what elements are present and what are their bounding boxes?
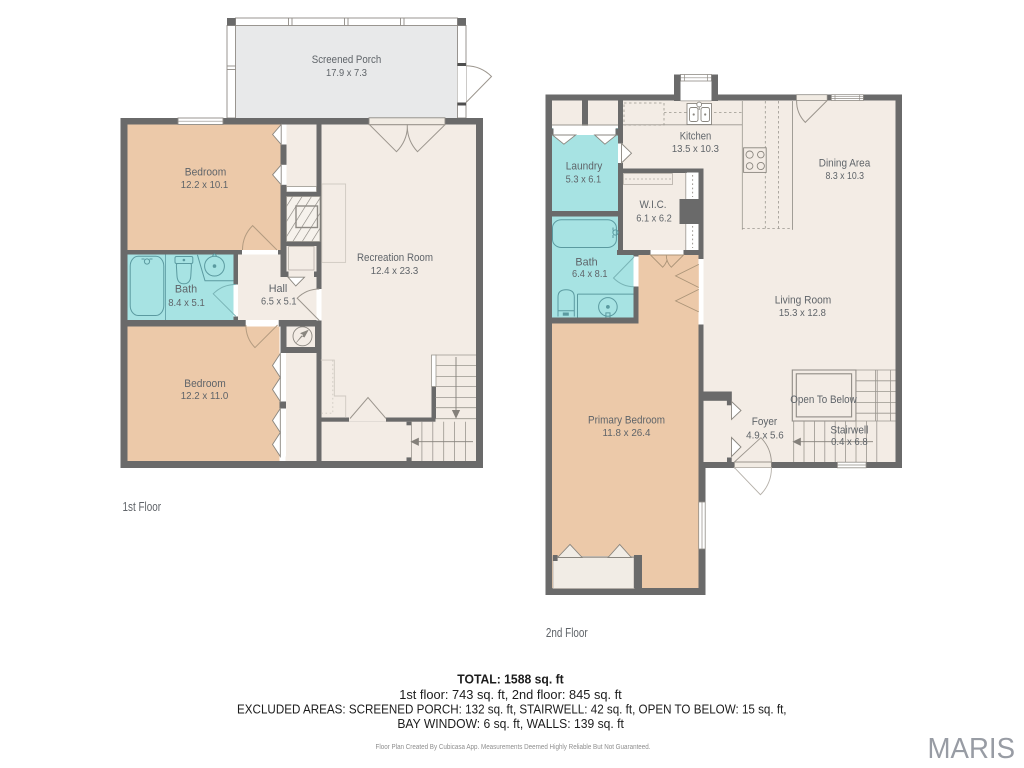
- svg-text:8.3 x 10.3: 8.3 x 10.3: [826, 171, 865, 182]
- svg-text:1st Floor: 1st Floor: [123, 499, 162, 514]
- svg-text:Recreation Room: Recreation Room: [357, 252, 433, 264]
- svg-text:6.1 x 6.2: 6.1 x 6.2: [636, 213, 672, 224]
- svg-text:Bedroom: Bedroom: [185, 166, 227, 178]
- svg-text:MARIS: MARIS: [928, 733, 1016, 765]
- svg-text:6.4 x 8.1: 6.4 x 8.1: [572, 269, 608, 280]
- svg-text:Foyer: Foyer: [752, 416, 778, 428]
- svg-text:5.3 x 6.1: 5.3 x 6.1: [566, 174, 602, 185]
- svg-text:1st floor: 743 sq. ft, 2nd flo: 1st floor: 743 sq. ft, 2nd floor: 845 sq…: [399, 687, 622, 702]
- svg-text:2nd Floor: 2nd Floor: [546, 625, 588, 640]
- svg-text:6.5 x 5.1: 6.5 x 5.1: [261, 296, 297, 307]
- svg-text:TOTAL: 1588 sq. ft: TOTAL: 1588 sq. ft: [457, 672, 564, 687]
- svg-text:Screened Porch: Screened Porch: [312, 54, 382, 66]
- svg-text:12.2 x 10.1: 12.2 x 10.1: [181, 180, 229, 191]
- svg-text:Bath: Bath: [175, 283, 197, 295]
- svg-text:Floor Plan Created By Cubicasa: Floor Plan Created By Cubicasa App. Meas…: [376, 744, 651, 751]
- svg-text:Living Room: Living Room: [775, 295, 832, 307]
- svg-text:Dining Area: Dining Area: [819, 158, 871, 170]
- svg-text:Kitchen: Kitchen: [680, 131, 712, 143]
- svg-text:Open To Below: Open To Below: [790, 394, 857, 406]
- svg-text:15.3 x 12.8: 15.3 x 12.8: [779, 308, 826, 319]
- svg-text:13.5 x 10.3: 13.5 x 10.3: [672, 144, 719, 155]
- svg-text:4.9 x 5.6: 4.9 x 5.6: [746, 431, 784, 442]
- svg-text:17.9 x 7.3: 17.9 x 7.3: [326, 68, 367, 79]
- svg-text:Primary Bedroom: Primary Bedroom: [588, 414, 665, 426]
- svg-text:Bath: Bath: [575, 257, 597, 269]
- svg-text:8.4 x 5.1: 8.4 x 5.1: [168, 298, 205, 309]
- svg-text:Bedroom: Bedroom: [184, 378, 226, 390]
- svg-text:12.2 x 11.0: 12.2 x 11.0: [181, 391, 229, 402]
- svg-text:0.4 x 6.8: 0.4 x 6.8: [831, 437, 868, 448]
- svg-text:Stairwell: Stairwell: [830, 425, 868, 437]
- svg-text:EXCLUDED AREAS: SCREENED PORCH: EXCLUDED AREAS: SCREENED PORCH: 132 sq. …: [237, 701, 787, 716]
- svg-text:W.I.C.: W.I.C.: [640, 199, 667, 211]
- svg-text:Laundry: Laundry: [566, 161, 603, 173]
- svg-text:11.8 x 26.4: 11.8 x 26.4: [603, 428, 651, 439]
- svg-text:Hall: Hall: [269, 283, 288, 295]
- svg-text:BAY WINDOW: 6 sq. ft, WALLS: 1: BAY WINDOW: 6 sq. ft, WALLS: 139 sq. ft: [397, 716, 624, 731]
- svg-text:12.4 x 23.3: 12.4 x 23.3: [371, 266, 419, 277]
